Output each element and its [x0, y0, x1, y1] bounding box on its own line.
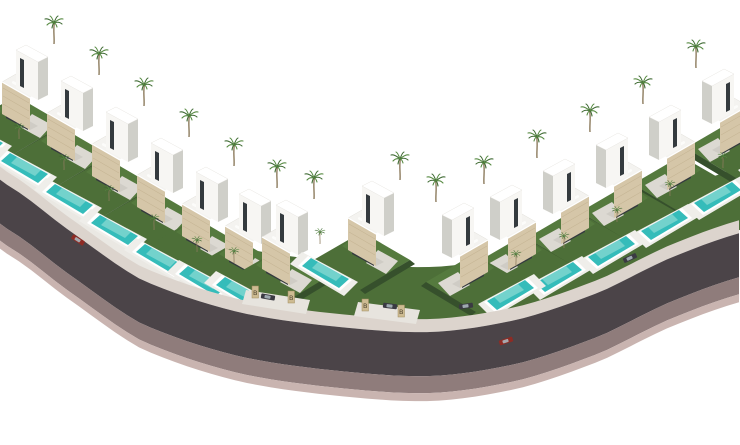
- signpost-label: B: [289, 294, 293, 302]
- stair-tower-side: [298, 212, 308, 255]
- stair-tower-side: [596, 145, 606, 188]
- palm-tree: [45, 16, 63, 44]
- stair-tower-side: [173, 150, 183, 193]
- tower-window-slit: [366, 194, 370, 224]
- stair-tower-side: [649, 117, 659, 160]
- stair-tower-side: [83, 88, 93, 131]
- tower-window-slit: [567, 172, 571, 202]
- tower-window-slit: [65, 89, 69, 119]
- stair-tower-side: [543, 171, 553, 214]
- tower-window-slit: [673, 118, 677, 148]
- palm-tree: [427, 174, 445, 202]
- palm-tree: [315, 229, 325, 244]
- tower-window-slit: [466, 216, 470, 246]
- stair-tower-side: [384, 193, 394, 236]
- palm-tree: [135, 78, 153, 106]
- palm-tree: [268, 160, 286, 188]
- stair-tower-side: [218, 179, 228, 222]
- tower-window-slit: [280, 213, 284, 243]
- tower-window-slit: [200, 180, 204, 210]
- tower-window-slit: [243, 202, 247, 232]
- stair-tower-side: [702, 81, 712, 124]
- block-signpost: B: [398, 305, 405, 317]
- tower-window-slit: [620, 146, 624, 176]
- villa: [290, 152, 415, 296]
- signpost-label: B: [253, 289, 257, 297]
- tower-window-slit: [514, 198, 518, 228]
- block-signpost: B: [252, 286, 259, 298]
- palm-tree: [475, 156, 493, 184]
- palm-tree: [180, 109, 198, 137]
- palm-tree: [391, 152, 409, 180]
- block-signpost: B: [362, 299, 369, 311]
- palm-tree: [687, 40, 705, 68]
- block-signpost: B: [288, 291, 295, 303]
- palm-tree: [634, 76, 652, 104]
- palm-tree: [225, 138, 243, 166]
- scene-canvas: BBBB: [0, 0, 740, 445]
- tower-window-slit: [110, 120, 114, 150]
- stair-tower-side: [490, 197, 500, 240]
- signpost-label: B: [399, 308, 403, 316]
- palm-tree: [581, 104, 599, 132]
- palm-tree: [305, 171, 323, 199]
- tower-window-slit: [20, 58, 24, 88]
- stair-tower-side: [38, 57, 48, 100]
- stair-tower-side: [442, 215, 452, 258]
- palm-tree: [528, 130, 546, 158]
- stair-tower-side: [128, 119, 138, 162]
- palm-tree: [90, 47, 108, 75]
- signpost-label: B: [363, 302, 367, 310]
- tower-window-slit: [155, 151, 159, 181]
- villa-development-render: BBBB: [0, 0, 740, 445]
- tower-window-slit: [726, 82, 730, 112]
